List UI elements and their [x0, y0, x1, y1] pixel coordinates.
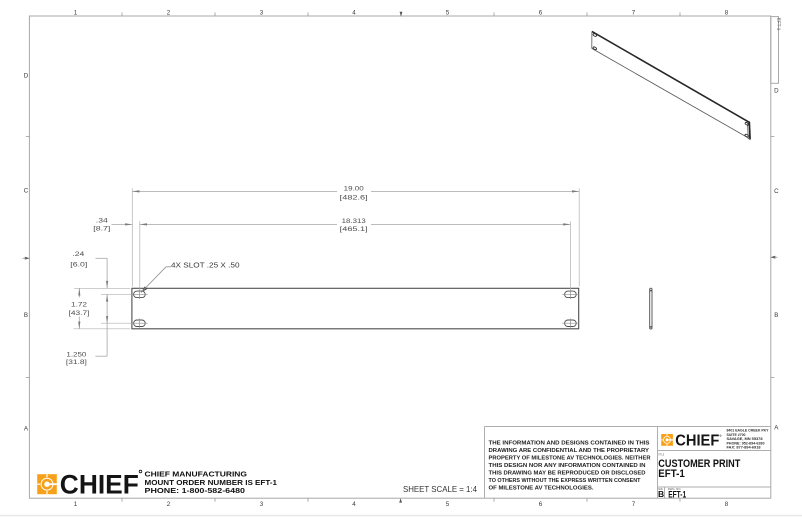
- svg-text:6: 6: [539, 10, 543, 17]
- svg-text:EFT-1: EFT-1: [668, 489, 686, 499]
- svg-text:B: B: [774, 312, 778, 319]
- svg-text:1.72: 1.72: [71, 301, 88, 308]
- svg-text:SHEET SCALE = 1:4: SHEET SCALE = 1:4: [403, 484, 477, 494]
- svg-text:.24: .24: [72, 251, 85, 258]
- svg-text:C: C: [774, 188, 779, 195]
- svg-text:5: 5: [446, 10, 450, 17]
- svg-text:CHIEF: CHIEF: [675, 432, 719, 449]
- svg-text:D: D: [24, 72, 29, 79]
- svg-text:THIS DESIGN NOR ANY INFORMATIO: THIS DESIGN NOR ANY INFORMATION CONTAINE…: [489, 463, 646, 469]
- svg-text:7: 7: [632, 501, 636, 508]
- svg-text:PHONE: 1-800-582-6480: PHONE: 1-800-582-6480: [145, 486, 246, 495]
- svg-text:THE INFORMATION AND DESIGNS CO: THE INFORMATION AND DESIGNS CONTAINED IN…: [489, 441, 650, 447]
- svg-text:8: 8: [725, 10, 729, 17]
- svg-text:DRAWING ARE CONFIDENTIAL AND T: DRAWING ARE CONFIDENTIAL AND THE PROPRIE…: [489, 448, 650, 454]
- svg-text:A: A: [24, 426, 29, 433]
- svg-text:6: 6: [539, 501, 543, 508]
- svg-text:B: B: [24, 312, 28, 319]
- svg-text:B: B: [658, 489, 664, 499]
- svg-text:FAX: 877-894-6918: FAX: 877-894-6918: [727, 446, 761, 450]
- svg-text:5: 5: [446, 501, 450, 508]
- svg-text:7: 7: [632, 10, 636, 17]
- svg-text:EFT-1: EFT-1: [776, 18, 781, 31]
- svg-text:4: 4: [352, 501, 356, 508]
- svg-text:3: 3: [260, 501, 264, 508]
- svg-text:THIS DRAWING MAY BE REPRODUCED: THIS DRAWING MAY BE REPRODUCED OR DISCLO…: [489, 471, 646, 477]
- svg-text:[482.6]: [482.6]: [340, 194, 368, 201]
- svg-text:2: 2: [167, 10, 171, 17]
- svg-text:1: 1: [74, 10, 78, 17]
- svg-text:[43.7]: [43.7]: [69, 310, 90, 317]
- svg-text:TO OTHERS WITHOUT THE EXPRESS: TO OTHERS WITHOUT THE EXPRESS WRITTEN CO…: [489, 478, 642, 484]
- svg-text:A: A: [774, 425, 779, 432]
- svg-text:2: 2: [167, 501, 171, 508]
- svg-text:PROPERTY OF MILESTONE AV TECHN: PROPERTY OF MILESTONE AV TECHNOLOGIES. N…: [489, 456, 651, 462]
- svg-text:3: 3: [260, 10, 264, 17]
- svg-text:[8.7]: [8.7]: [93, 226, 110, 233]
- svg-text:OF MILESTONE AV TECHNOLOGIES.: OF MILESTONE AV TECHNOLOGIES.: [489, 485, 595, 491]
- svg-text:C: C: [24, 188, 29, 195]
- svg-text:CHIEF: CHIEF: [60, 470, 139, 500]
- svg-text:TITLE: TITLE: [658, 453, 664, 457]
- svg-text:D: D: [774, 87, 779, 94]
- svg-text:8: 8: [725, 501, 729, 508]
- svg-text:[6.0]: [6.0]: [70, 261, 87, 268]
- svg-text:18.313: 18.313: [342, 218, 367, 225]
- svg-text:[31.8]: [31.8]: [66, 359, 87, 366]
- svg-text:[465.1]: [465.1]: [340, 226, 368, 233]
- svg-text:.34: .34: [96, 217, 109, 224]
- svg-text:4X SLOT .25 X .50: 4X SLOT .25 X .50: [171, 262, 240, 269]
- svg-text:EFT-1: EFT-1: [658, 468, 685, 480]
- svg-text:1.250: 1.250: [66, 351, 87, 358]
- svg-text:19.00: 19.00: [344, 186, 365, 193]
- svg-text:4: 4: [352, 10, 356, 17]
- svg-text:1: 1: [74, 501, 78, 508]
